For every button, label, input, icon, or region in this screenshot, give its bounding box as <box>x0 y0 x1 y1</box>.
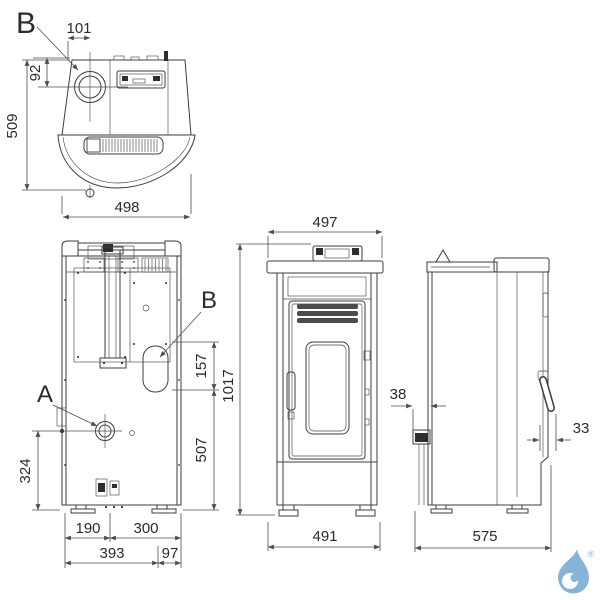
rear-back-panel <box>74 268 170 362</box>
svg-text:498: 498 <box>114 199 139 216</box>
svg-text:509: 509 <box>4 113 21 138</box>
technical-drawing-page: B 101 92 509 498 <box>0 0 600 600</box>
svg-text:38: 38 <box>390 386 407 403</box>
dim-front-base-width: 491 <box>268 522 380 551</box>
front-door <box>289 301 365 459</box>
registered-mark: ® <box>588 549 595 559</box>
callout-a-leader <box>53 405 97 426</box>
svg-text:491: 491 <box>312 528 337 545</box>
svg-text:497: 497 <box>312 214 337 231</box>
svg-text:575: 575 <box>472 528 497 545</box>
dim-top-flue-offset-y: 92 <box>27 58 70 87</box>
front-view: 497 1017 491 <box>220 214 383 551</box>
svg-text:1017: 1017 <box>220 369 237 402</box>
rear-view: A B 157 507 324 190 300 <box>17 241 219 568</box>
dim-top-flue-offset-x: 101 <box>66 20 91 58</box>
dim-rear-intake-height: 324 <box>17 431 122 510</box>
svg-text:157: 157 <box>193 353 210 378</box>
front-feet <box>279 505 375 516</box>
top-display-panel <box>117 71 165 88</box>
svg-text:92: 92 <box>27 65 44 82</box>
svg-text:393: 393 <box>99 545 124 562</box>
svg-text:324: 324 <box>17 458 34 483</box>
side-view: 38 33 575 <box>390 250 590 552</box>
side-body-outline <box>428 272 549 505</box>
top-flue-collar <box>55 52 128 122</box>
rear-power-inlet <box>96 479 119 496</box>
front-top-cap <box>267 261 383 273</box>
front-door-window <box>306 342 349 434</box>
dim-rear-base-row2: 393 97 <box>65 545 181 568</box>
callout-a-label: A <box>37 381 53 408</box>
svg-text:33: 33 <box>573 420 590 437</box>
top-view: B 101 92 509 498 <box>4 7 195 217</box>
dim-side-handle-offset: 33 <box>527 414 589 451</box>
dim-front-height: 1017 <box>220 244 311 515</box>
dim-top-width: 498 <box>62 174 191 217</box>
stove-dimension-drawing: B 101 92 509 498 <box>0 0 600 600</box>
callout-b-top-label: B <box>16 7 36 40</box>
top-front-grille <box>84 137 163 154</box>
svg-text:300: 300 <box>133 520 158 537</box>
callout-b-rear-label: B <box>201 287 217 314</box>
front-display-panel <box>313 246 362 261</box>
side-panel-seams <box>497 272 517 505</box>
svg-text:507: 507 <box>193 437 210 462</box>
callout-b-rear: B <box>160 287 217 357</box>
front-air-grille <box>297 304 358 323</box>
side-door-handle <box>538 371 551 408</box>
dim-rear-flue-to-base: 507 <box>183 390 219 510</box>
svg-text:101: 101 <box>66 20 91 37</box>
svg-text:97: 97 <box>162 545 179 562</box>
front-door-handle <box>287 372 295 410</box>
callout-a-rear: A <box>37 381 97 426</box>
dim-side-rear-pipe-offset: 38 <box>390 386 446 431</box>
fan-motor-screw <box>143 305 149 311</box>
front-hopper-lid <box>288 277 366 296</box>
dim-top-depth: 509 <box>4 60 86 190</box>
svg-text:190: 190 <box>75 520 100 537</box>
rear-vent-slots <box>142 258 168 272</box>
side-feet <box>431 505 528 513</box>
side-intake-pipe <box>413 430 430 505</box>
rear-feet <box>71 505 176 513</box>
antenna <box>164 51 168 61</box>
flue-marker-triangle <box>436 250 450 262</box>
dim-rear-flue-span: 157 <box>172 342 219 390</box>
brand-logo: ® <box>558 549 595 594</box>
rear-side-rails <box>62 256 181 505</box>
